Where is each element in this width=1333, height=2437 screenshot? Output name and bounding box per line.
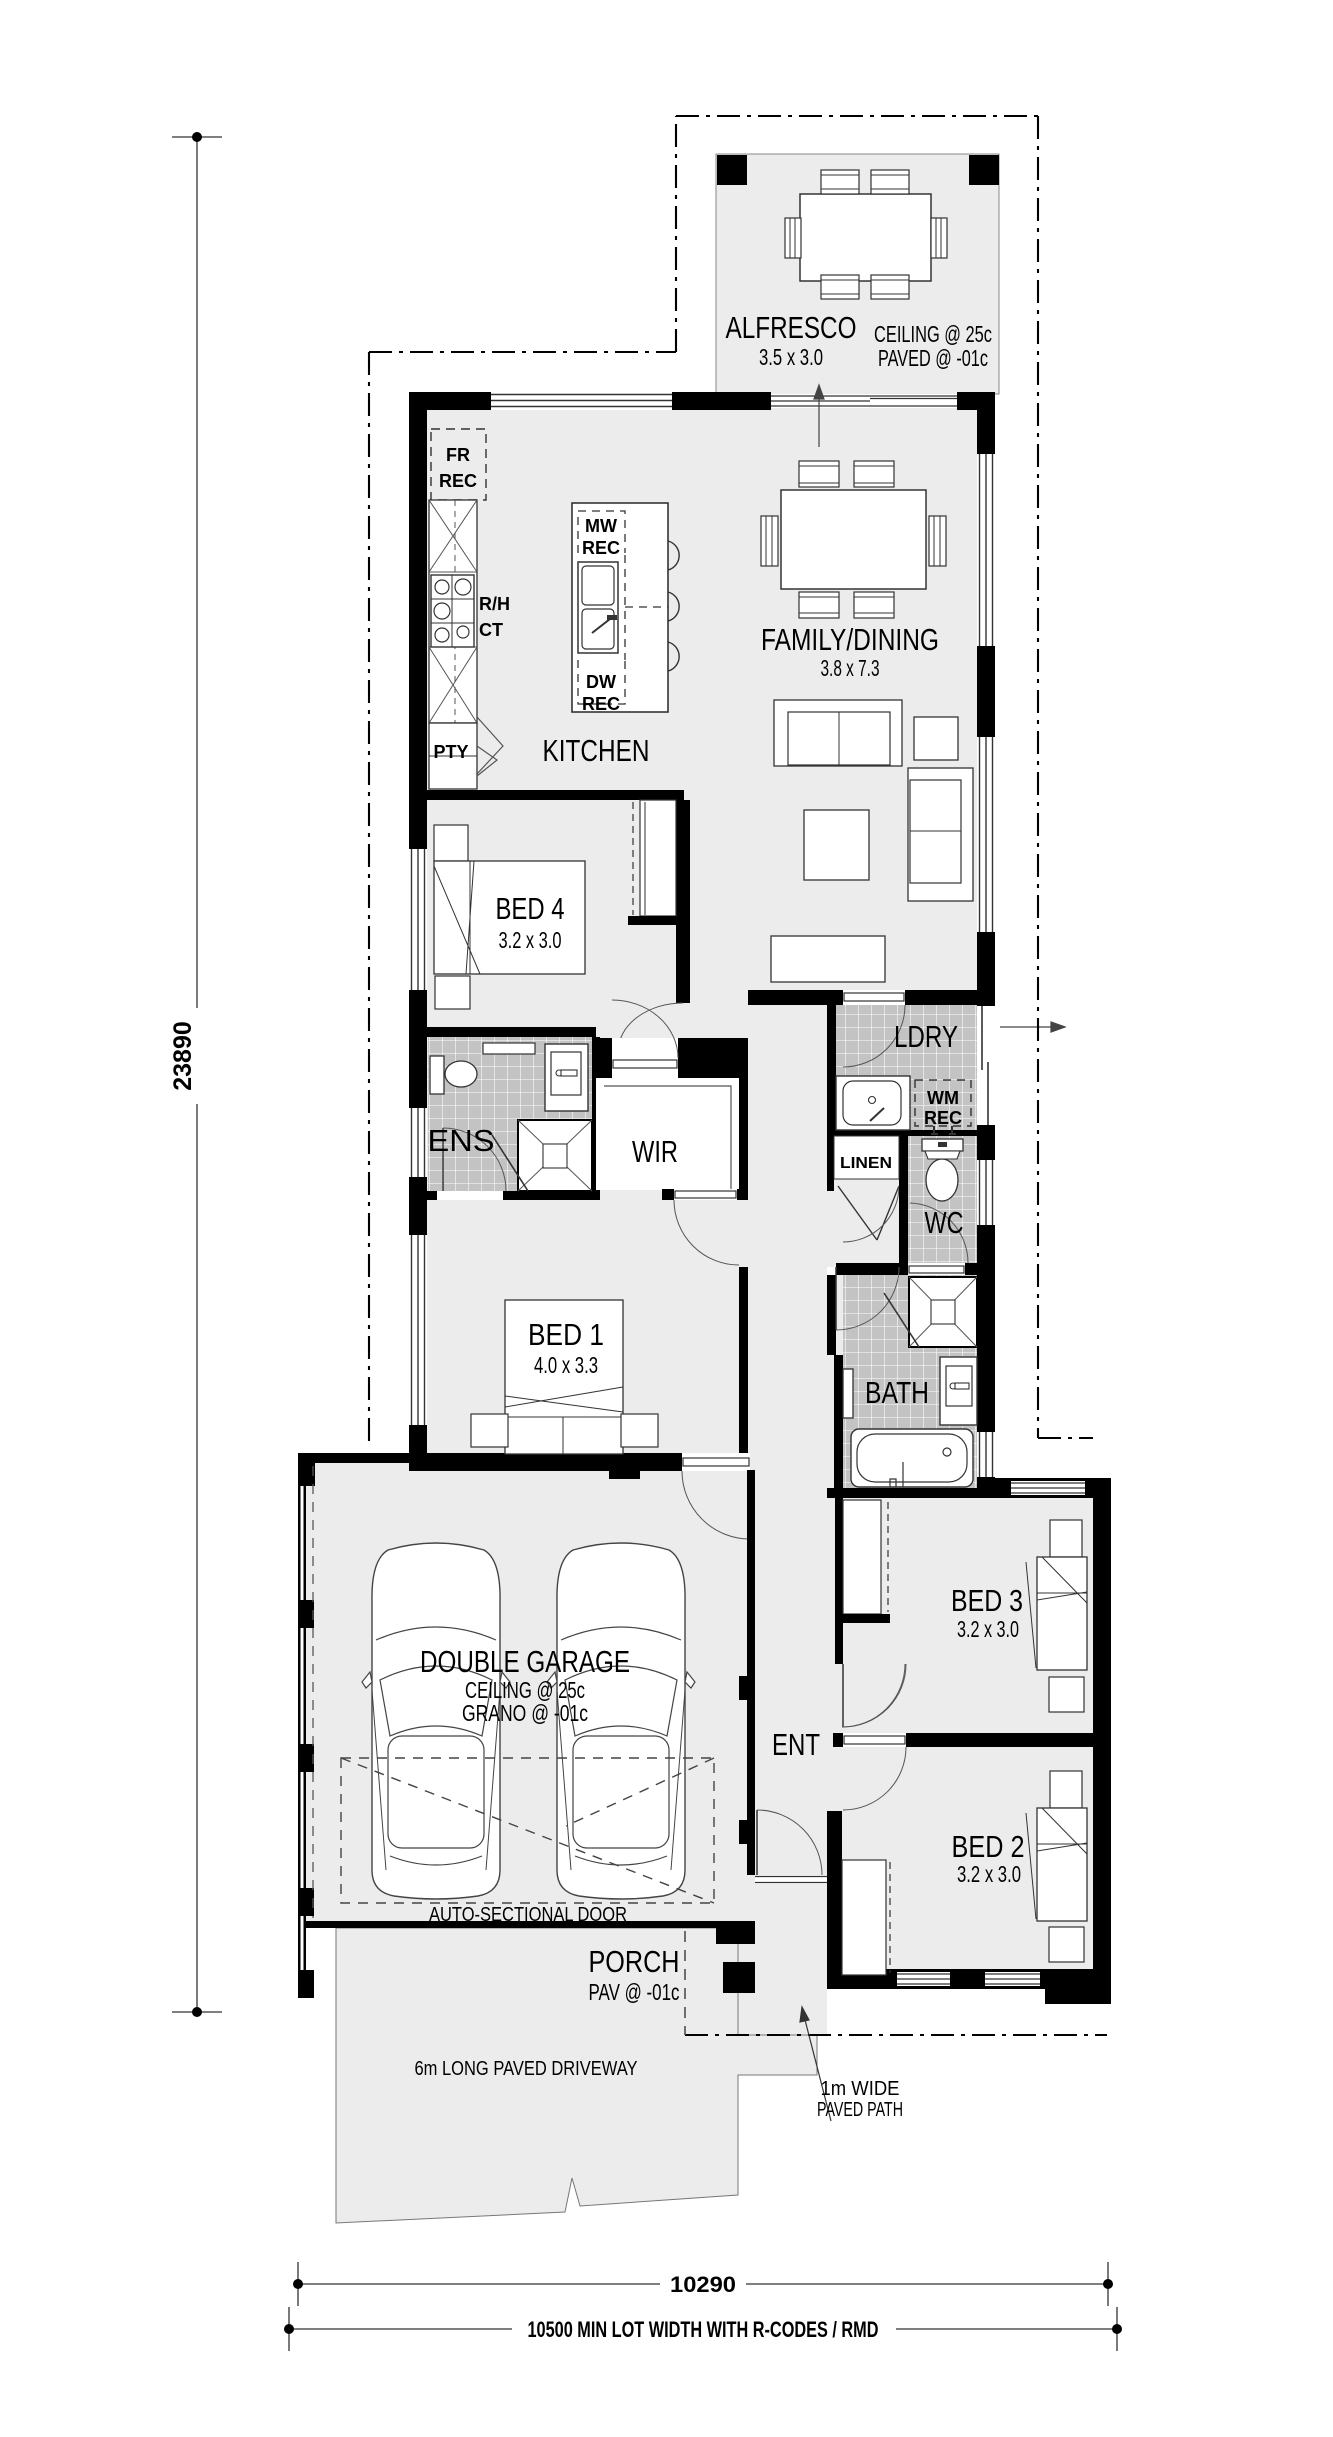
svg-text:MW: MW [585, 516, 617, 536]
svg-text:PORCH: PORCH [589, 1944, 680, 1979]
svg-text:ENS: ENS [428, 1123, 495, 1158]
svg-text:REC: REC [582, 694, 620, 714]
svg-text:REC: REC [439, 471, 477, 491]
svg-text:10500 MIN LOT WIDTH WITH R-COD: 10500 MIN LOT WIDTH WITH R-CODES / RMD [528, 2317, 879, 2342]
svg-text:10290: 10290 [670, 2272, 736, 2297]
svg-text:REC: REC [582, 538, 620, 558]
svg-text:BED 1: BED 1 [528, 1317, 604, 1352]
svg-text:CT: CT [479, 620, 503, 640]
svg-text:ALFRESCO: ALFRESCO [726, 310, 857, 345]
svg-text:3.2 x 3.0: 3.2 x 3.0 [957, 1616, 1019, 1642]
svg-text:BED 3: BED 3 [951, 1583, 1023, 1618]
svg-text:LINEN: LINEN [840, 1155, 892, 1172]
svg-text:3.2 x 3.0: 3.2 x 3.0 [957, 1861, 1021, 1887]
svg-text:DOUBLE GARAGE: DOUBLE GARAGE [420, 1644, 630, 1679]
svg-text:FAMILY/DINING: FAMILY/DINING [761, 622, 939, 657]
svg-text:BATH: BATH [865, 1375, 929, 1410]
svg-text:WIR: WIR [632, 1134, 678, 1169]
svg-text:3.8 x 7.3: 3.8 x 7.3 [821, 655, 880, 681]
svg-text:PAV @ -01c: PAV @ -01c [589, 1979, 680, 2005]
svg-text:PAVED PATH: PAVED PATH [817, 2099, 903, 2121]
svg-text:1m WIDE: 1m WIDE [821, 2078, 900, 2100]
svg-text:23890: 23890 [169, 1021, 197, 1091]
svg-text:KITCHEN: KITCHEN [543, 733, 650, 768]
svg-text:ENT: ENT [772, 1727, 820, 1762]
svg-text:PAVED @ -01c: PAVED @ -01c [878, 345, 988, 371]
svg-text:AUTO-SECTIONAL DOOR: AUTO-SECTIONAL DOOR [429, 1904, 627, 1926]
svg-text:4.0 x 3.3: 4.0 x 3.3 [534, 1352, 598, 1378]
svg-text:DW: DW [586, 672, 616, 692]
svg-text:LDRY: LDRY [894, 1019, 958, 1054]
svg-text:CEILING @ 25c: CEILING @ 25c [874, 321, 992, 347]
svg-text:GRANO @ -01c: GRANO @ -01c [462, 1700, 588, 1726]
svg-text:PTY: PTY [433, 742, 468, 762]
svg-text:3.5 x 3.0: 3.5 x 3.0 [759, 344, 823, 370]
svg-text:WM: WM [927, 1088, 959, 1108]
svg-text:BED 2: BED 2 [952, 1829, 1025, 1864]
svg-text:R/H: R/H [479, 594, 510, 614]
svg-text:6m LONG PAVED DRIVEWAY: 6m LONG PAVED DRIVEWAY [415, 2058, 638, 2080]
svg-text:BED 4: BED 4 [496, 891, 565, 926]
svg-text:WC: WC [925, 1205, 964, 1240]
svg-text:FR: FR [446, 445, 470, 465]
svg-text:REC: REC [924, 1108, 962, 1128]
svg-text:3.2 x 3.0: 3.2 x 3.0 [499, 927, 562, 953]
